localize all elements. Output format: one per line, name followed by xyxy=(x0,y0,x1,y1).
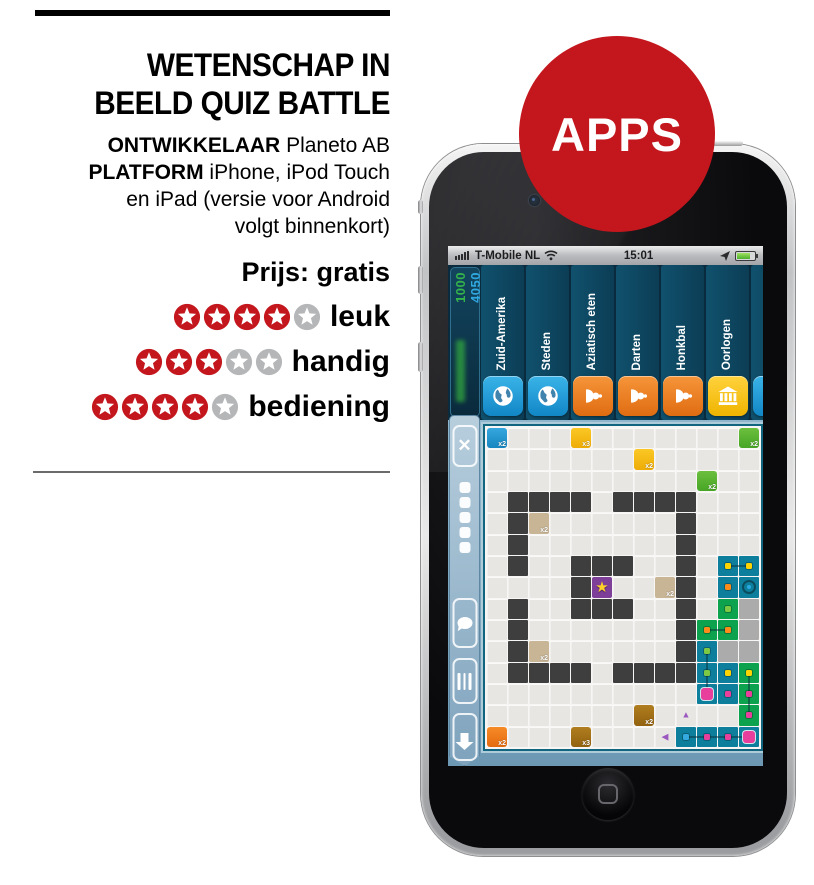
board-cell[interactable] xyxy=(655,513,675,533)
board-cell[interactable] xyxy=(487,492,507,512)
board-cell[interactable] xyxy=(655,449,675,469)
route-dot-yellow xyxy=(746,670,752,676)
board-cell[interactable] xyxy=(592,705,612,725)
board-cell[interactable] xyxy=(697,641,717,661)
apps-badge-label: APPS xyxy=(551,107,683,162)
board-cell[interactable] xyxy=(718,577,738,597)
star-filled-icon xyxy=(195,348,223,376)
pager-dots xyxy=(459,482,470,553)
board-cell[interactable] xyxy=(592,428,612,448)
board-cell[interactable] xyxy=(592,449,612,469)
multiplier-label: x2 xyxy=(666,591,674,598)
player-name-blurred xyxy=(456,340,465,402)
volume-down-button[interactable] xyxy=(418,266,423,294)
category-column-oorlogen[interactable]: Oorlogen xyxy=(706,265,749,420)
board-cell[interactable] xyxy=(592,492,612,512)
board-cell[interactable]: x3 xyxy=(571,727,591,747)
route-dot-magenta xyxy=(746,691,752,697)
board-cell[interactable] xyxy=(634,535,654,555)
board-cell[interactable] xyxy=(529,492,549,512)
board-cell[interactable] xyxy=(592,535,612,555)
chat-button[interactable] xyxy=(452,598,477,648)
board-cell[interactable] xyxy=(718,556,738,576)
carrier-label: T-Mobile NL xyxy=(475,250,540,262)
category-label: Steden xyxy=(541,332,553,370)
platform-line2: en iPad (versie voor Android xyxy=(0,186,390,213)
board-cell[interactable] xyxy=(739,599,759,619)
board-cell[interactable] xyxy=(508,663,528,683)
board-cell[interactable] xyxy=(571,577,591,597)
wifi-icon xyxy=(544,250,558,261)
status-bar: T-Mobile NL 15:01 xyxy=(448,246,763,265)
page: WETENSCHAP IN BEELD QUIZ BATTLE ONTWIKKE… xyxy=(0,0,814,885)
board-cell[interactable] xyxy=(508,641,528,661)
board-cell[interactable] xyxy=(571,663,591,683)
board-cell[interactable] xyxy=(487,556,507,576)
board-cell[interactable] xyxy=(613,705,633,725)
board-cell[interactable] xyxy=(676,684,696,704)
globe-icon[interactable] xyxy=(753,376,764,416)
board-cell[interactable]: ◀ xyxy=(655,727,675,747)
board-cell[interactable] xyxy=(613,620,633,640)
star-filled-icon xyxy=(135,348,163,376)
page-title-line2: BEELD QUIZ BATTLE xyxy=(27,84,390,122)
board-cell[interactable] xyxy=(508,449,528,469)
star-filled-icon xyxy=(151,393,179,421)
board-cell[interactable] xyxy=(697,513,717,533)
review-meta: ONTWIKKELAAR Planeto AB PLATFORM iPhone,… xyxy=(0,132,390,240)
board-cell[interactable] xyxy=(634,641,654,661)
board-cell[interactable] xyxy=(697,449,717,469)
board-cell[interactable] xyxy=(529,535,549,555)
globe-icon[interactable] xyxy=(483,376,523,416)
board-cell[interactable] xyxy=(676,471,696,491)
rating-row-leuk: leuk xyxy=(0,294,390,339)
board-cell[interactable] xyxy=(655,535,675,555)
board-cell[interactable] xyxy=(571,556,591,576)
board-cell[interactable]: x2 xyxy=(655,577,675,597)
board-cell[interactable] xyxy=(487,641,507,661)
board-cell[interactable] xyxy=(487,705,507,725)
board-cell[interactable] xyxy=(571,620,591,640)
board-area: x2x3x2x2x2x2★x2x2x2▲x2x3◀ xyxy=(448,420,763,766)
route-dot-green xyxy=(704,670,710,676)
price-text: Prijs: gratis xyxy=(0,256,390,288)
route-dot-magenta xyxy=(701,688,713,700)
board-cell[interactable] xyxy=(487,513,507,533)
multiplier-label: x2 xyxy=(645,463,653,470)
board-cell[interactable] xyxy=(592,471,612,491)
board-cell[interactable] xyxy=(508,492,528,512)
board-cell[interactable] xyxy=(550,492,570,512)
developer-value: Planeto AB xyxy=(286,134,390,157)
board-cell[interactable] xyxy=(655,428,675,448)
board-cell[interactable] xyxy=(676,428,696,448)
board-cell[interactable] xyxy=(571,705,591,725)
category-label: Oorlogen xyxy=(721,319,733,370)
signal-bars-icon xyxy=(455,251,469,261)
board-cell[interactable] xyxy=(592,684,612,704)
board-cell[interactable] xyxy=(550,727,570,747)
multiplier-label: x2 xyxy=(645,719,653,726)
board-cell[interactable]: x2 xyxy=(529,641,549,661)
board-cell[interactable] xyxy=(634,727,654,747)
board-cell[interactable]: x2 xyxy=(487,727,507,747)
board-cell[interactable] xyxy=(697,535,717,555)
board-cell[interactable] xyxy=(697,428,717,448)
board-cell[interactable] xyxy=(508,577,528,597)
close-button[interactable]: ✕ xyxy=(452,425,477,467)
multiplier-label: x2 xyxy=(498,441,506,448)
board-cell[interactable] xyxy=(571,641,591,661)
board-cell[interactable] xyxy=(571,471,591,491)
board-cell[interactable] xyxy=(550,663,570,683)
board-cell[interactable] xyxy=(529,449,549,469)
queue-button[interactable] xyxy=(452,658,477,704)
board-cell[interactable] xyxy=(739,663,759,683)
board-cell[interactable] xyxy=(676,492,696,512)
rating-row-handig: handig xyxy=(0,339,390,384)
pawn-icon[interactable]: ♟ xyxy=(573,376,613,416)
board-cell[interactable] xyxy=(613,599,633,619)
board-cell[interactable] xyxy=(508,599,528,619)
pawn-icon[interactable]: ♟ xyxy=(663,376,703,416)
board-cell[interactable] xyxy=(571,599,591,619)
board-cell[interactable] xyxy=(655,471,675,491)
route-dot-green xyxy=(704,648,710,654)
board-cell[interactable] xyxy=(508,620,528,640)
volume-up-button[interactable] xyxy=(418,200,423,214)
board-cell[interactable] xyxy=(550,577,570,597)
board-cell[interactable] xyxy=(676,535,696,555)
board-cell[interactable] xyxy=(508,535,528,555)
triangle-marker-icon: ◀ xyxy=(662,732,669,741)
multiplier-label: x2 xyxy=(708,484,716,491)
board-cell[interactable] xyxy=(718,513,738,533)
star-empty-icon xyxy=(293,303,321,331)
score-panel: 1000 4050 xyxy=(450,267,480,417)
pawn-icon[interactable]: ♟ xyxy=(618,376,658,416)
route-dot-magenta xyxy=(704,734,710,740)
route-dot-yellow xyxy=(725,670,731,676)
board-cell[interactable] xyxy=(487,599,507,619)
platform-line1: PLATFORM iPhone, iPod Touch xyxy=(0,159,390,186)
star-filled-icon xyxy=(181,393,209,421)
multiplier-label: x3 xyxy=(582,441,590,448)
board-cell[interactable] xyxy=(697,556,717,576)
board-cell[interactable] xyxy=(655,641,675,661)
category-column-zuid-amerika[interactable]: Zuid-Amerika xyxy=(481,265,524,420)
star-icons xyxy=(135,348,283,376)
score-green: 1000 xyxy=(453,272,468,303)
multiplier-label: x2 xyxy=(498,740,506,747)
route-dot-orange xyxy=(725,627,731,633)
board-cell[interactable] xyxy=(655,705,675,725)
board-cell[interactable] xyxy=(634,577,654,597)
star-filled-icon xyxy=(121,393,149,421)
board-cell[interactable] xyxy=(613,449,633,469)
route-dot-magenta xyxy=(746,712,752,718)
board-cell[interactable]: ▲ xyxy=(676,705,696,725)
board-cell[interactable] xyxy=(634,471,654,491)
star-empty-icon xyxy=(211,393,239,421)
app-screenshot: T-Mobile NL 15:01 1000 xyxy=(448,246,763,766)
board-cell[interactable] xyxy=(634,492,654,512)
route-dot-blue xyxy=(683,734,689,740)
star-filled-icon xyxy=(203,303,231,331)
board-cell[interactable] xyxy=(508,556,528,576)
board-cell[interactable] xyxy=(529,663,549,683)
board-cell[interactable] xyxy=(487,663,507,683)
board-cell[interactable] xyxy=(655,599,675,619)
board-cell[interactable] xyxy=(592,663,612,683)
board-cell[interactable] xyxy=(676,620,696,640)
board-cell[interactable] xyxy=(697,577,717,597)
download-button[interactable] xyxy=(452,713,477,761)
board-cell[interactable] xyxy=(739,577,759,597)
board-cell[interactable] xyxy=(676,663,696,683)
board-cell[interactable] xyxy=(529,684,549,704)
board-cell[interactable] xyxy=(508,513,528,533)
route-dot-yellow xyxy=(725,563,731,569)
board-cell[interactable] xyxy=(634,684,654,704)
multiplier-label: x3 xyxy=(582,740,590,747)
category-column-darten[interactable]: Darten♟ xyxy=(616,265,659,420)
board-cell[interactable] xyxy=(613,556,633,576)
board-cell[interactable] xyxy=(508,684,528,704)
board-cell[interactable] xyxy=(655,620,675,640)
board-cell[interactable]: x3 xyxy=(571,428,591,448)
category-column-honkbal[interactable]: Honkbal♟ xyxy=(661,265,704,420)
board-cell[interactable] xyxy=(676,599,696,619)
category-label: Honkbal xyxy=(676,325,688,370)
board-cell[interactable] xyxy=(613,684,633,704)
board-cell[interactable] xyxy=(718,428,738,448)
board-cell[interactable] xyxy=(739,535,759,555)
board-cell[interactable] xyxy=(718,663,738,683)
board-cell[interactable] xyxy=(550,599,570,619)
board-cell[interactable] xyxy=(487,620,507,640)
board-cell[interactable] xyxy=(655,492,675,512)
board-cell[interactable] xyxy=(739,492,759,512)
phone-screen-bezel: T-Mobile NL 15:01 1000 xyxy=(429,152,787,848)
board-cell[interactable] xyxy=(676,577,696,597)
apps-badge: APPS xyxy=(519,36,715,232)
battery-icon xyxy=(735,251,756,261)
board-cell[interactable] xyxy=(613,727,633,747)
board-cell[interactable] xyxy=(529,620,549,640)
board-cell[interactable] xyxy=(718,449,738,469)
board-cell[interactable] xyxy=(613,428,633,448)
route-dot-magenta xyxy=(725,734,731,740)
home-button[interactable] xyxy=(582,768,634,820)
category-column-steden[interactable]: Steden xyxy=(526,265,569,420)
board-cell[interactable] xyxy=(718,641,738,661)
board-cell[interactable] xyxy=(634,663,654,683)
board-cell[interactable] xyxy=(592,641,612,661)
bank-icon[interactable] xyxy=(708,376,748,416)
home-button-icon xyxy=(598,784,618,804)
category-label: Darten xyxy=(631,334,643,370)
category-column-plaatsen[interactable]: Plaatsen xyxy=(751,265,763,420)
board-cell[interactable] xyxy=(634,599,654,619)
board-cell[interactable] xyxy=(718,471,738,491)
board-cell[interactable] xyxy=(487,449,507,469)
board-cell[interactable] xyxy=(571,492,591,512)
chat-bubble-icon xyxy=(457,617,472,629)
board-cell[interactable] xyxy=(592,727,612,747)
board-cell[interactable] xyxy=(550,428,570,448)
board-cell[interactable] xyxy=(508,705,528,725)
board-cell[interactable] xyxy=(739,449,759,469)
board-cell[interactable] xyxy=(529,705,549,725)
board-cell[interactable] xyxy=(508,727,528,747)
mute-switch[interactable] xyxy=(418,342,423,372)
board-cell[interactable] xyxy=(613,535,633,555)
board-cell[interactable] xyxy=(634,620,654,640)
board-cell[interactable] xyxy=(529,577,549,597)
board-cell[interactable] xyxy=(592,513,612,533)
board-cell[interactable]: ★ xyxy=(592,577,612,597)
board-cell[interactable] xyxy=(676,513,696,533)
star-empty-icon xyxy=(225,348,253,376)
board-cell[interactable] xyxy=(697,620,717,640)
board-cell[interactable] xyxy=(739,513,759,533)
board-cell[interactable] xyxy=(487,684,507,704)
board-cell[interactable] xyxy=(592,556,612,576)
multiplier-label: x2 xyxy=(540,527,548,534)
board-cell[interactable] xyxy=(550,620,570,640)
platform-line3: volgt binnenkort) xyxy=(0,213,390,240)
board-cell[interactable]: x2 xyxy=(487,428,507,448)
board-cell[interactable] xyxy=(613,492,633,512)
board-cell[interactable] xyxy=(508,428,528,448)
board-cell[interactable]: x2 xyxy=(634,449,654,469)
developer-line: ONTWIKKELAAR Planeto AB xyxy=(0,132,390,159)
board-cell[interactable] xyxy=(697,705,717,725)
route-dot-magenta xyxy=(725,691,731,697)
board-cell[interactable] xyxy=(529,556,549,576)
board-cell[interactable] xyxy=(676,641,696,661)
board-grid: x2x3x2x2x2x2★x2x2x2▲x2x3◀ xyxy=(487,428,759,747)
board-cell[interactable] xyxy=(739,471,759,491)
board-cell[interactable] xyxy=(550,471,570,491)
board-cell[interactable] xyxy=(718,705,738,725)
page-title-line1: WETENSCHAP IN xyxy=(27,46,390,84)
board-cell[interactable] xyxy=(571,513,591,533)
board-cell[interactable] xyxy=(613,577,633,597)
star-icons xyxy=(173,303,321,331)
board-cell[interactable] xyxy=(529,428,549,448)
board-cell[interactable] xyxy=(676,449,696,469)
star-icons xyxy=(91,393,239,421)
board-cell[interactable] xyxy=(529,599,549,619)
category-column-aziatisch-eten[interactable]: Aziatisch eten♟ xyxy=(571,265,614,420)
route-dot-green xyxy=(725,606,731,612)
board-cell[interactable] xyxy=(592,599,612,619)
board-cell[interactable] xyxy=(550,449,570,469)
board-cell[interactable] xyxy=(718,535,738,555)
board-cell[interactable] xyxy=(613,471,633,491)
board-cell[interactable] xyxy=(550,556,570,576)
board-cell[interactable] xyxy=(487,577,507,597)
board-cell[interactable] xyxy=(634,428,654,448)
star-filled-icon xyxy=(233,303,261,331)
board-cell[interactable] xyxy=(571,535,591,555)
board-cell[interactable] xyxy=(508,471,528,491)
route-dot-orange xyxy=(704,627,710,633)
board-cell[interactable] xyxy=(655,684,675,704)
platform-value1: iPhone, iPod Touch xyxy=(209,161,390,184)
board-cell[interactable] xyxy=(550,513,570,533)
star-filled-icon xyxy=(173,303,201,331)
board-cell[interactable] xyxy=(550,705,570,725)
rating-label: bediening xyxy=(248,390,390,424)
route-dot-magenta xyxy=(743,731,755,743)
board-cell[interactable] xyxy=(571,449,591,469)
category-label: Zuid-Amerika xyxy=(496,297,508,371)
board-cell[interactable] xyxy=(655,663,675,683)
bottom-rule xyxy=(33,471,390,473)
globe-icon[interactable] xyxy=(528,376,568,416)
front-camera xyxy=(529,195,540,206)
star-empty-icon xyxy=(255,348,283,376)
rating-row-bediening: bediening xyxy=(0,384,390,429)
board-cell[interactable] xyxy=(718,599,738,619)
category-header: 1000 4050 Zuid-AmerikaStedenAziatisch et… xyxy=(448,265,763,420)
game-sidebar: ✕ xyxy=(449,415,480,766)
board-cell[interactable] xyxy=(571,684,591,704)
multiplier-label: x2 xyxy=(750,441,758,448)
board-cell[interactable]: x2 xyxy=(634,705,654,725)
board-cell[interactable] xyxy=(634,513,654,533)
platform-label: PLATFORM xyxy=(88,161,203,184)
board-cell[interactable] xyxy=(655,556,675,576)
board-cell[interactable] xyxy=(697,599,717,619)
board-cell[interactable] xyxy=(676,727,696,747)
board-cell[interactable]: x2 xyxy=(529,513,549,533)
ratings-list: leukhandigbediening xyxy=(0,294,390,429)
rating-label: handig xyxy=(292,345,390,379)
board-cell[interactable] xyxy=(550,641,570,661)
star-filled-icon xyxy=(91,393,119,421)
board-cell[interactable] xyxy=(529,727,549,747)
board-cell[interactable] xyxy=(718,492,738,512)
multiplier-label: x2 xyxy=(540,655,548,662)
phone-frame: T-Mobile NL 15:01 1000 xyxy=(421,144,795,856)
board-cell[interactable] xyxy=(739,620,759,640)
target-ring-icon xyxy=(742,580,756,594)
board-cell[interactable] xyxy=(613,663,633,683)
board-cell[interactable] xyxy=(634,556,654,576)
board-cell[interactable] xyxy=(592,620,612,640)
rating-label: leuk xyxy=(330,300,390,334)
board-cell[interactable] xyxy=(550,535,570,555)
board-cell[interactable] xyxy=(487,535,507,555)
board-cell[interactable] xyxy=(718,684,738,704)
board-cell[interactable] xyxy=(487,471,507,491)
board-cell[interactable] xyxy=(739,641,759,661)
board-cell[interactable]: x2 xyxy=(697,471,717,491)
board-cell[interactable] xyxy=(676,556,696,576)
board-cell[interactable] xyxy=(613,641,633,661)
board-cell[interactable] xyxy=(697,492,717,512)
board-cell[interactable] xyxy=(529,471,549,491)
board-cell[interactable] xyxy=(613,513,633,533)
board-cell[interactable]: x2 xyxy=(739,428,759,448)
board-cell[interactable] xyxy=(550,684,570,704)
top-rule xyxy=(35,10,390,16)
